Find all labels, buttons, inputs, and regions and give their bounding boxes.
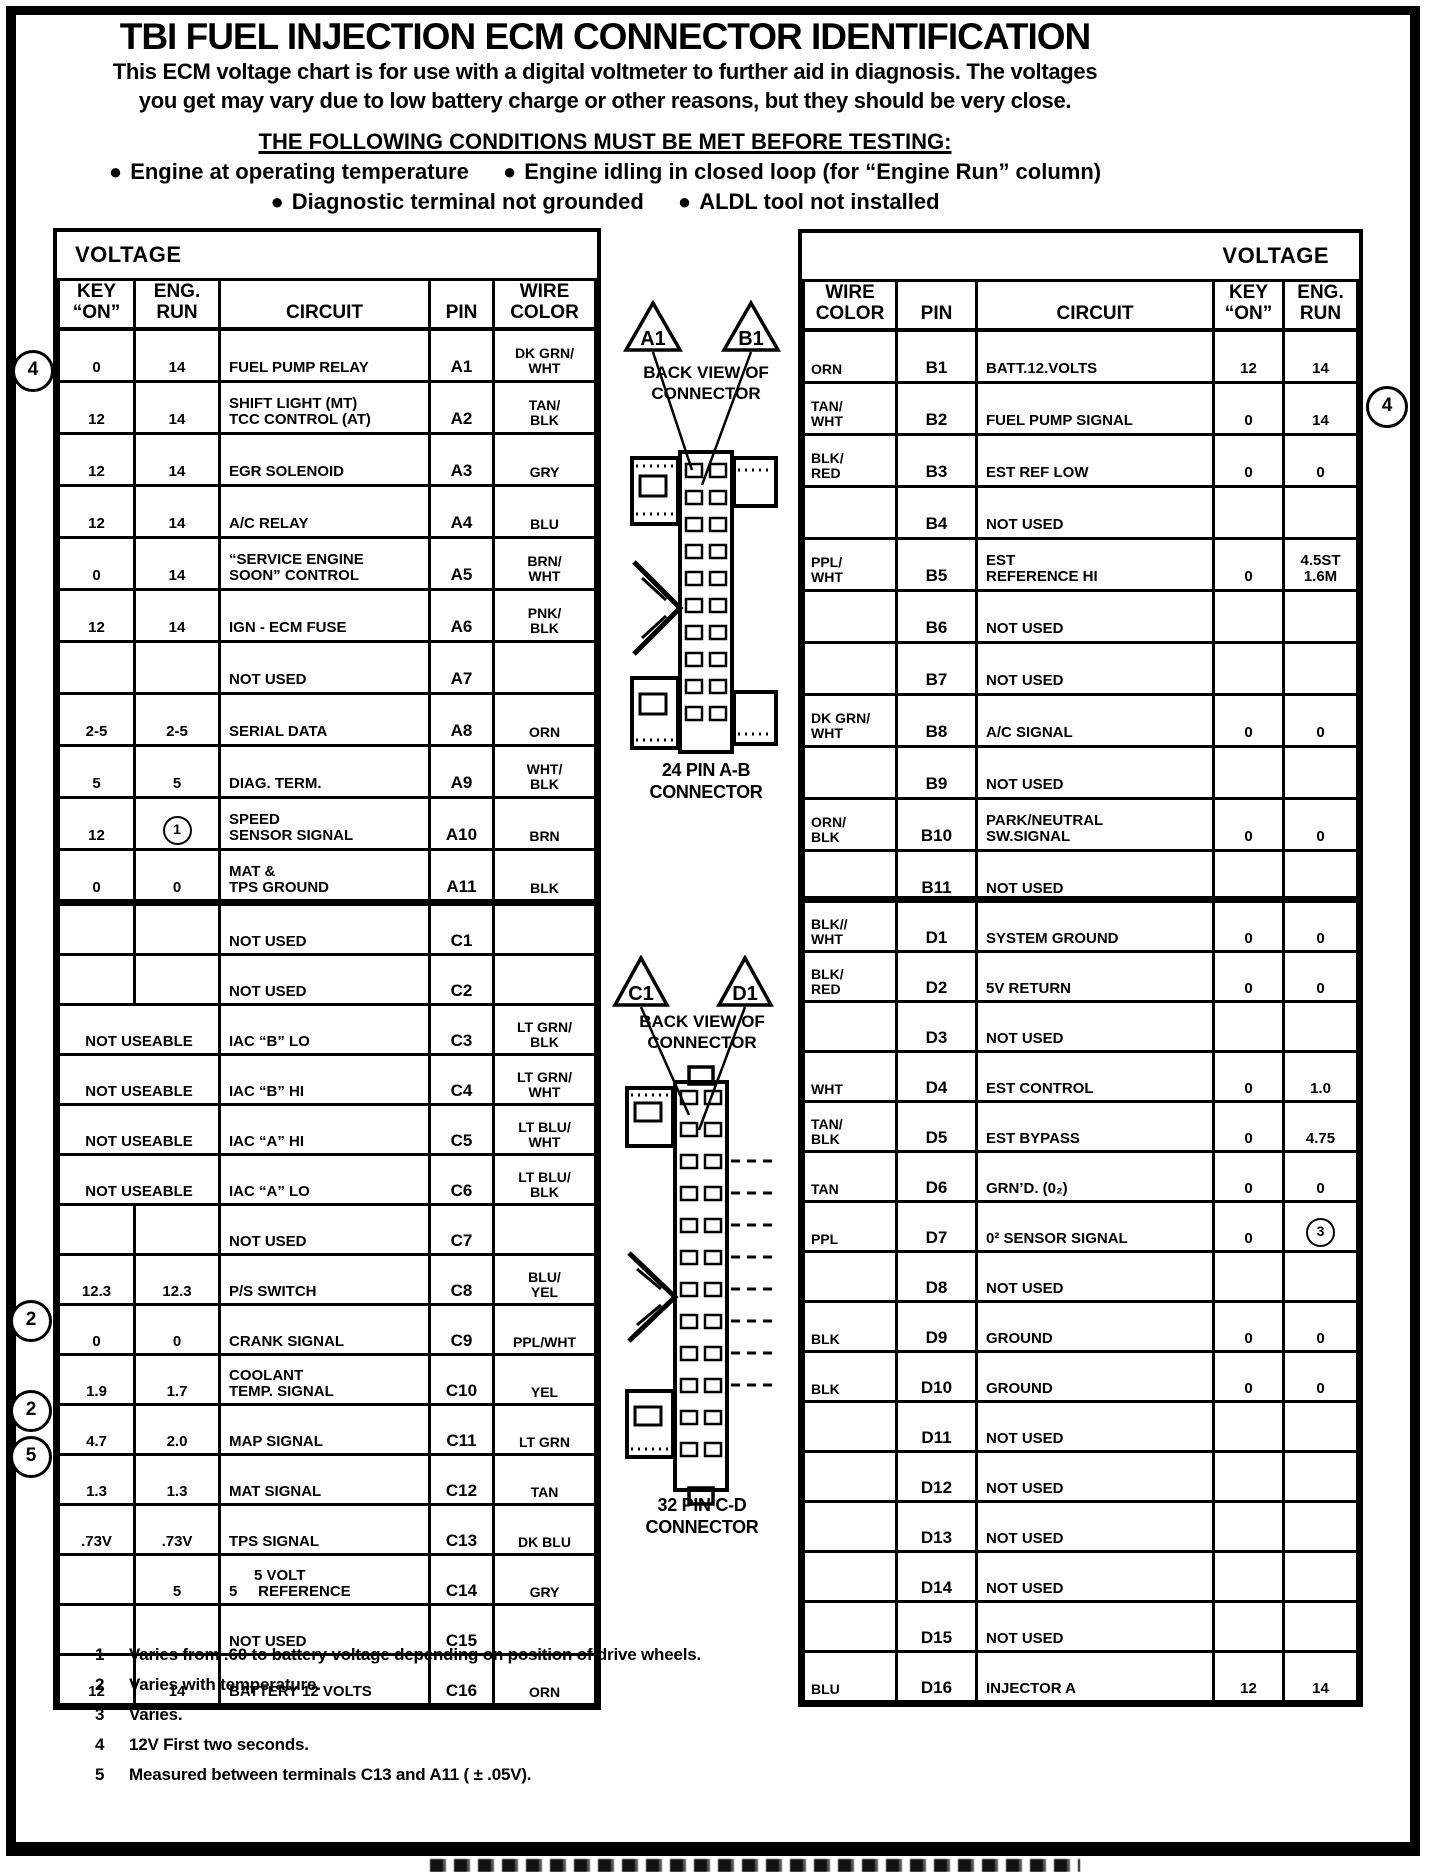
cell-C7-pin: C7 [430,1205,494,1255]
cell-D7-wire: PPL [804,1202,897,1252]
cell-A9-v2: 5 [135,745,220,797]
table-row: BLK/ REDB3EST REF LOW00 [804,434,1358,486]
cell-C14-pin: C14 [430,1555,494,1605]
cell-D13-v2 [1284,1502,1358,1552]
cell-A3-pin: A3 [430,433,494,485]
cell-C9-v1: 0 [59,1305,135,1355]
cell-A11-pin: A11 [430,849,494,901]
cell-C8-v1: 12.3 [59,1255,135,1305]
cell-A7-wire [494,641,596,693]
table-b-header-row: WIRE COLOR PIN CIRCUIT KEY “ON” ENG. RUN [804,281,1358,330]
cell-B2-circuit: FUEL PUMP SIGNAL [977,382,1214,434]
condition-item: ●Diagnostic terminal not grounded [270,189,643,214]
cell-C4-circuit: IAC “B” HI [220,1055,430,1105]
intro-line-2: you get may vary due to low battery char… [20,87,1190,116]
cell-D4-v1: 0 [1214,1052,1284,1102]
cell-A10-circuit: SPEED SENSOR SIGNAL [220,797,430,849]
scanned-document-page: TBI FUEL INJECTION ECM CONNECTOR IDENTIF… [0,0,1440,1872]
c1-triangle-label: C1 [628,983,654,1005]
table-row: 1214A/C RELAYA4BLU [59,485,596,537]
cell-B7-circuit: NOT USED [977,642,1214,694]
cell-A10-wire: BRN [494,797,596,849]
cell-C4-wire: LT GRN/ WHT [494,1055,596,1105]
footnote-text: 12V First two seconds. [129,1735,309,1755]
cell-A9-v1: 5 [59,745,135,797]
cell-C8-v2: 12.3 [135,1255,220,1305]
cell-D1-pin: D1 [897,902,977,952]
cell-C9-v2: 0 [135,1305,220,1355]
table-row: PPLD70² SENSOR SIGNAL03 [804,1202,1358,1252]
cell-D6-v1: 0 [1214,1152,1284,1202]
col-header-eng-run: ENG. RUN [1284,281,1358,330]
table-row: D3NOT USED [804,1002,1358,1052]
cell-B10-pin: B10 [897,798,977,850]
cell-D3-v2 [1284,1002,1358,1052]
cell-D15-v1 [1214,1602,1284,1652]
col-header-pin: PIN [430,280,494,329]
table-row: TAN/ BLKD5EST BYPASS04.75 [804,1102,1358,1152]
cell-C11-circuit: MAP SIGNAL [220,1405,430,1455]
cell-B2-wire: TAN/ WHT [804,382,897,434]
header: TBI FUEL INJECTION ECM CONNECTOR IDENTIF… [20,16,1190,215]
cell-A11-v1: 0 [59,849,135,901]
cell-D10-pin: D10 [897,1352,977,1402]
cell-A2-v2: 14 [135,381,220,433]
footnote-number: 2 [95,1675,129,1695]
cell-C2-circuit: NOT USED [220,955,430,1005]
cell-A7-v1 [59,641,135,693]
table-row: NOT USEDA7 [59,641,596,693]
cell-C5-pin: C5 [430,1105,494,1155]
table-row: B6NOT USED [804,590,1358,642]
footnote-marker-2-c12: 2 [10,1390,52,1432]
cell-D12-v2 [1284,1452,1358,1502]
cell-D14-v1 [1214,1552,1284,1602]
cell-D11-pin: D11 [897,1402,977,1452]
table-row: 4.72.0MAP SIGNALC11LT GRN [59,1405,596,1455]
cell-D1-v1: 0 [1214,902,1284,952]
cell-C12-v1: 1.3 [59,1455,135,1505]
cell-D8-wire [804,1252,897,1302]
footnote-text: Varies with temperature. [129,1675,321,1695]
table-d-box: BLK// WHTD1SYSTEM GROUND00BLK/ REDD25V R… [798,896,1363,1707]
cell-A3-v2: 14 [135,433,220,485]
cell-A6-v1: 12 [59,589,135,641]
table-row: NOT USEABLEIAC “A” HIC5LT BLU/ WHT [59,1105,596,1155]
cell-A8-circuit: SERIAL DATA [220,693,430,745]
cell-D12-wire [804,1452,897,1502]
cell-D11-v2 [1284,1402,1358,1452]
bullet-icon: ● [503,159,516,184]
d1-triangle-label: D1 [732,983,758,1005]
cell-B3-circuit: EST REF LOW [977,434,1214,486]
cell-D15-circuit: NOT USED [977,1602,1214,1652]
table-b-box: VOLTAGE WIRE COLOR PIN CIRCUIT KEY “ON” … [798,229,1363,960]
connector-a-table: KEY “ON” ENG. RUN CIRCUIT PIN WIRE COLOR… [57,278,597,955]
voltage-label-right: VOLTAGE [802,233,1359,279]
cell-D10-wire: BLK [804,1352,897,1402]
cell-C2-v2 [135,955,220,1005]
cell-D8-pin: D8 [897,1252,977,1302]
cell-A6-pin: A6 [430,589,494,641]
cell-B10-v2: 0 [1284,798,1358,850]
cell-D4-wire: WHT [804,1052,897,1102]
cell-A9-wire: WHT/ BLK [494,745,596,797]
cell-B11-wire [804,850,897,902]
cell-C13-circuit: TPS SIGNAL [220,1505,430,1555]
cell-D1-circuit: SYSTEM GROUND [977,902,1214,952]
cell-B8-v2: 0 [1284,694,1358,746]
cell-C11-v1: 4.7 [59,1405,135,1455]
table-row: 1214SHIFT LIGHT (MT) TCC CONTROL (AT)A2T… [59,381,596,433]
cell-A5-wire: BRN/ WHT [494,537,596,589]
cell-B10-wire: ORN/ BLK [804,798,897,850]
cell-C12-wire: TAN [494,1455,596,1505]
table-row: NOT USEDC2 [59,955,596,1005]
cell-D14-circuit: NOT USED [977,1552,1214,1602]
cell-D9-wire: BLK [804,1302,897,1352]
cell-C6-v1: NOT USEABLE [59,1155,220,1205]
cell-A3-wire: GRY [494,433,596,485]
cell-B1-v2: 14 [1284,330,1358,383]
cd-connector-diagram: C1 D1 [603,955,801,1550]
table-row: ORNB1BATT.12.VOLTS1214 [804,330,1358,383]
table-row: D11NOT USED [804,1402,1358,1452]
cell-B3-wire: BLK/ RED [804,434,897,486]
cell-C12-v2: 1.3 [135,1455,220,1505]
cell-D15-pin: D15 [897,1602,977,1652]
cell-A4-wire: BLU [494,485,596,537]
condition-text: Diagnostic terminal not grounded [292,189,644,214]
cell-D2-circuit: 5V RETURN [977,952,1214,1002]
cell-B6-pin: B6 [897,590,977,642]
footnote-text: Varies. [129,1705,182,1725]
table-row: TAN/ WHTB2FUEL PUMP SIGNAL014 [804,382,1358,434]
cell-D13-v1 [1214,1502,1284,1552]
condition-text: Engine idling in closed loop (for “Engin… [524,159,1101,184]
cell-D3-pin: D3 [897,1002,977,1052]
cell-C13-v1: .73V [59,1505,135,1555]
col-header-eng-run: ENG. RUN [135,280,220,329]
condition-text: Engine at operating temperature [130,159,469,184]
cell-D14-v2 [1284,1552,1358,1602]
cell-B3-v1: 0 [1214,434,1284,486]
table-row: BLKD10GROUND00 [804,1352,1358,1402]
cell-D11-circuit: NOT USED [977,1402,1214,1452]
table-row: NOT USEABLEIAC “B” HIC4LT GRN/ WHT [59,1055,596,1105]
cell-A9-pin: A9 [430,745,494,797]
cell-B7-pin: B7 [897,642,977,694]
bullet-icon: ● [678,189,691,214]
conditions-line-1: ●Engine at operating temperature ●Engine… [20,159,1190,185]
cell-A1-v1: 0 [59,329,135,382]
cell-B6-circuit: NOT USED [977,590,1214,642]
cell-A10-v2: 1 [135,797,220,849]
table-row: 014FUEL PUMP RELAYA1DK GRN/ WHT [59,329,596,382]
cell-C3-v1: NOT USEABLE [59,1005,220,1055]
cell-B4-v1 [1214,486,1284,538]
cell-B11-v1 [1214,850,1284,902]
table-row: B7NOT USED [804,642,1358,694]
cell-C1-wire [494,905,596,955]
connector-d-table: BLK// WHTD1SYSTEM GROUND00BLK/ REDD25V R… [802,900,1359,1703]
cell-D10-v1: 0 [1214,1352,1284,1402]
cell-B4-v2 [1284,486,1358,538]
cell-C9-circuit: CRANK SIGNAL [220,1305,430,1355]
col-header-wire-color: WIRE COLOR [804,281,897,330]
cell-C8-wire: BLU/ YEL [494,1255,596,1305]
cell-D14-pin: D14 [897,1552,977,1602]
cell-D10-v2: 0 [1284,1352,1358,1402]
footnote-marker-4-right: 4 [1366,386,1408,428]
cell-B10-v1: 0 [1214,798,1284,850]
col-header-key-on: KEY “ON” [59,280,135,329]
table-row: PPL/ WHTB5EST REFERENCE HI04.5ST 1.6M [804,538,1358,590]
cell-D9-pin: D9 [897,1302,977,1352]
table-row: WHTD4EST CONTROL01.0 [804,1052,1358,1102]
conditions-heading: THE FOLLOWING CONDITIONS MUST BE MET BEF… [20,129,1190,155]
connector-b-table: WIRE COLOR PIN CIRCUIT KEY “ON” ENG. RUN… [802,279,1359,956]
cell-D7-v1: 0 [1214,1202,1284,1252]
table-row: 1214EGR SOLENOIDA3GRY [59,433,596,485]
condition-text: ALDL tool not installed [699,189,939,214]
cell-B1-pin: B1 [897,330,977,383]
cell-B11-v2 [1284,850,1358,902]
cell-B3-pin: B3 [897,434,977,486]
cell-C5-circuit: IAC “A” HI [220,1105,430,1155]
circled-footnote-ref: 3 [1306,1218,1335,1247]
cell-C3-wire: LT GRN/ BLK [494,1005,596,1055]
cell-C1-v2 [135,905,220,955]
table-row: B11NOT USED [804,850,1358,902]
cell-D4-circuit: EST CONTROL [977,1052,1214,1102]
cell-C6-pin: C6 [430,1155,494,1205]
cell-D12-v1 [1214,1452,1284,1502]
cell-C13-wire: DK BLU [494,1505,596,1555]
cell-C1-v1 [59,905,135,955]
table-row: 1214IGN - ECM FUSEA6PNK/ BLK [59,589,596,641]
cell-C2-wire [494,955,596,1005]
cell-A10-pin: A10 [430,797,494,849]
cell-D7-pin: D7 [897,1202,977,1252]
cell-D13-circuit: NOT USED [977,1502,1214,1552]
table-row: BLK/ REDD25V RETURN00 [804,952,1358,1002]
table-row: 014“SERVICE ENGINE SOON” CONTROLA5BRN/ W… [59,537,596,589]
cell-C9-pin: C9 [430,1305,494,1355]
cell-D16-v2: 14 [1284,1652,1358,1702]
footnote-marker-4-left: 4 [12,350,54,392]
table-row: BLK// WHTD1SYSTEM GROUND00 [804,902,1358,952]
cell-A7-pin: A7 [430,641,494,693]
table-row: ORN/ BLKB10PARK/NEUTRAL SW.SIGNAL00 [804,798,1358,850]
cell-B2-v1: 0 [1214,382,1284,434]
cell-C9-wire: PPL/WHT [494,1305,596,1355]
bullet-icon: ● [270,189,283,214]
cell-D4-v2: 1.0 [1284,1052,1358,1102]
cell-B1-wire: ORN [804,330,897,383]
footnote-number: 4 [95,1735,129,1755]
b1-triangle-label: B1 [738,328,764,350]
cell-A11-v2: 0 [135,849,220,901]
cell-D15-wire [804,1602,897,1652]
cell-D2-v1: 0 [1214,952,1284,1002]
cell-A4-circuit: A/C RELAY [220,485,430,537]
cell-C11-wire: LT GRN [494,1405,596,1455]
bullet-icon: ● [109,159,122,184]
table-row: B9NOT USED [804,746,1358,798]
cell-C6-wire: LT BLU/ BLK [494,1155,596,1205]
cell-C7-circuit: NOT USED [220,1205,430,1255]
cell-D3-wire [804,1002,897,1052]
cell-C14-v2: 5 [135,1555,220,1605]
cell-B9-circuit: NOT USED [977,746,1214,798]
table-row: D12NOT USED [804,1452,1358,1502]
cell-D5-wire: TAN/ BLK [804,1102,897,1152]
condition-item: ●ALDL tool not installed [678,189,940,214]
cell-A1-v2: 14 [135,329,220,382]
cell-D8-v2 [1284,1252,1358,1302]
cell-A7-v2 [135,641,220,693]
cell-C14-wire: GRY [494,1555,596,1605]
table-row: BLKD9GROUND00 [804,1302,1358,1352]
cell-C7-v1 [59,1205,135,1255]
cell-D5-v1: 0 [1214,1102,1284,1152]
cell-B5-v1: 0 [1214,538,1284,590]
table-row: 1.91.7COOLANT TEMP. SIGNALC10YEL [59,1355,596,1405]
cell-D11-wire [804,1402,897,1452]
cell-C4-pin: C4 [430,1055,494,1105]
cell-C10-circuit: COOLANT TEMP. SIGNAL [220,1355,430,1405]
cell-B2-pin: B2 [897,382,977,434]
footnote-item: 2Varies with temperature. [95,1675,1075,1695]
table-row: NOT USEDC1 [59,905,596,955]
table-row: 5 5 VOLT 5 REFERENCEC14GRY [59,1555,596,1605]
col-header-circuit: CIRCUIT [220,280,430,329]
cell-C2-pin: C2 [430,955,494,1005]
page-border-top [6,6,1420,15]
cell-C8-circuit: P/S SWITCH [220,1255,430,1305]
cell-C3-circuit: IAC “B” LO [220,1005,430,1055]
cell-B11-pin: B11 [897,850,977,902]
page-border-bottom [6,1842,1420,1856]
cell-A4-v1: 12 [59,485,135,537]
cell-B8-wire: DK GRN/ WHT [804,694,897,746]
cell-A4-v2: 14 [135,485,220,537]
table-row: 00MAT & TPS GROUNDA11BLK [59,849,596,901]
cell-A1-pin: A1 [430,329,494,382]
cell-A6-v2: 14 [135,589,220,641]
cell-D8-circuit: NOT USED [977,1252,1214,1302]
cell-C13-v2: .73V [135,1505,220,1555]
cell-A8-v2: 2-5 [135,693,220,745]
cell-C1-pin: C1 [430,905,494,955]
cell-C12-pin: C12 [430,1455,494,1505]
cell-D15-v2 [1284,1602,1358,1652]
cell-B4-circuit: NOT USED [977,486,1214,538]
cell-C2-v1 [59,955,135,1005]
ab-back-view-label: BACK VIEW OF CONNECTOR [610,362,802,405]
cell-D9-circuit: GROUND [977,1302,1214,1352]
cell-B8-pin: B8 [897,694,977,746]
voltage-label-left: VOLTAGE [57,232,597,278]
cell-A2-circuit: SHIFT LIGHT (MT) TCC CONTROL (AT) [220,381,430,433]
cell-A4-pin: A4 [430,485,494,537]
table-row: 2-52-5SERIAL DATAA8ORN [59,693,596,745]
cell-D2-wire: BLK/ RED [804,952,897,1002]
cell-A8-pin: A8 [430,693,494,745]
cell-A2-pin: A2 [430,381,494,433]
footnotes: 1Varies from .60 to battery voltage depe… [95,1645,1075,1795]
cell-A5-pin: A5 [430,537,494,589]
table-row: 00CRANK SIGNALC9PPL/WHT [59,1305,596,1355]
cell-C10-v1: 1.9 [59,1355,135,1405]
cell-B9-pin: B9 [897,746,977,798]
cell-D5-v2: 4.75 [1284,1102,1358,1152]
cell-D2-v2: 0 [1284,952,1358,1002]
footnote-marker-5-c13: 5 [10,1436,52,1478]
table-row: NOT USEABLEIAC “A” LOC6LT BLU/ BLK [59,1155,596,1205]
cell-B5-pin: B5 [897,538,977,590]
cell-A3-v1: 12 [59,433,135,485]
cell-A9-circuit: DIAG. TERM. [220,745,430,797]
ab-connector-label: 24 PIN A-B CONNECTOR [610,760,802,803]
cell-A1-circuit: FUEL PUMP RELAY [220,329,430,382]
cell-A11-wire: BLK [494,849,596,901]
table-a-header-row: KEY “ON” ENG. RUN CIRCUIT PIN WIRE COLOR [59,280,596,329]
cell-D5-pin: D5 [897,1102,977,1152]
cell-B10-circuit: PARK/NEUTRAL SW.SIGNAL [977,798,1214,850]
footnote-number: 3 [95,1705,129,1725]
page-title: TBI FUEL INJECTION ECM CONNECTOR IDENTIF… [20,16,1190,58]
table-row: NOT USEDC7 [59,1205,596,1255]
cell-B1-circuit: BATT.12.VOLTS [977,330,1214,383]
cell-A5-v1: 0 [59,537,135,589]
connector-c-table: NOT USEDC1NOT USEDC2NOT USEABLEIAC “B” L… [57,903,597,1706]
table-row: D8NOT USED [804,1252,1358,1302]
footnote-item: 3Varies. [95,1705,1075,1725]
condition-item: ●Engine idling in closed loop (for “Engi… [503,159,1101,184]
footnote-number: 1 [95,1645,129,1665]
cell-C6-circuit: IAC “A” LO [220,1155,430,1205]
cell-A8-v1: 2-5 [59,693,135,745]
cd-connector-body [627,1067,775,1504]
cell-A3-circuit: EGR SOLENOID [220,433,430,485]
cell-D7-v2: 3 [1284,1202,1358,1252]
footnote-number: 5 [95,1765,129,1785]
cell-A2-wire: TAN/ BLK [494,381,596,433]
cell-D12-circuit: NOT USED [977,1452,1214,1502]
cell-C7-v2 [135,1205,220,1255]
cell-B6-v2 [1284,590,1358,642]
cell-C5-wire: LT BLU/ WHT [494,1105,596,1155]
col-header-wire-color: WIRE COLOR [494,280,596,329]
cell-D13-wire [804,1502,897,1552]
cell-C11-v2: 2.0 [135,1405,220,1455]
cell-B11-circuit: NOT USED [977,850,1214,902]
cell-B9-v1 [1214,746,1284,798]
cell-D16-v1: 12 [1214,1652,1284,1702]
cell-D6-circuit: GRN’D. (0₂) [977,1152,1214,1202]
cd-connector-label: 32 PIN C-D CONNECTOR [603,1495,801,1538]
cell-D11-v1 [1214,1402,1284,1452]
cell-D3-v1 [1214,1002,1284,1052]
cell-C11-pin: C11 [430,1405,494,1455]
cell-D6-v2: 0 [1284,1152,1358,1202]
footnote-item: 412V First two seconds. [95,1735,1075,1755]
intro-line-1: This ECM voltage chart is for use with a… [20,58,1190,87]
cell-B9-v2 [1284,746,1358,798]
table-row: .73V.73VTPS SIGNALC13DK BLU [59,1505,596,1555]
